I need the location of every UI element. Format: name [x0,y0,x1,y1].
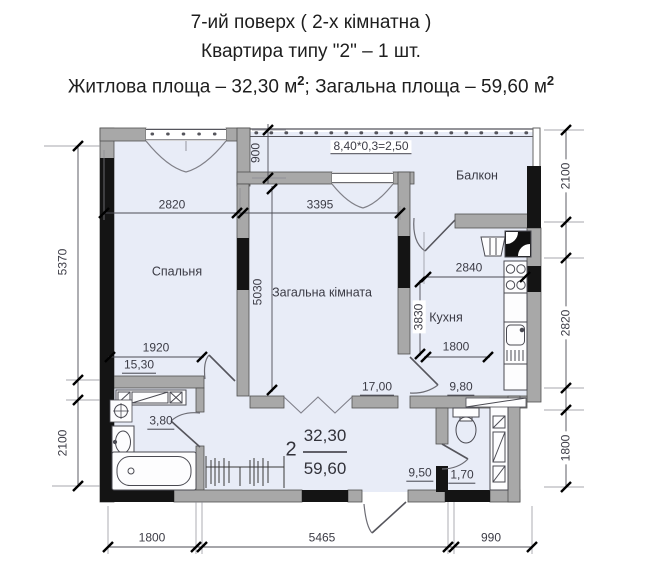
vent-shaft-icon [505,231,531,257]
room-label-living: Загальна кімната [272,286,372,299]
bathtub-icon [112,452,196,490]
dim-bottom-990: 990 [481,532,501,545]
apartment-number: 2 [285,440,296,461]
dim-right-2100: 2100 [560,160,573,193]
entrance-door-icon [364,502,406,533]
dim-top-3395: 3395 [307,199,334,212]
kitchen-sink-icon [504,322,527,364]
floor-plan-sheet: 7-ий поверх ( 2-х кімнатна ) Квартира ти… [0,0,670,581]
dim-right-2820: 2820 [560,307,573,340]
dim-living-5030: 5030 [252,279,265,306]
area-label-bathroom: 3,80 [147,415,174,430]
room-label-bedroom: Спальня [152,265,202,278]
area-label-bedroom: 15,30 [122,359,156,374]
dim-left-5370: 5370 [57,249,70,276]
dim-kitchen-1800: 1800 [443,341,470,354]
dim-kitchen-3830: 3830 [413,301,426,334]
dim-kitchen-2840: 2840 [456,262,483,275]
niche-icon [466,398,526,407]
room-label-kitchen: Кухня [429,311,462,324]
dim-right-1800: 1800 [560,432,573,465]
area-label-hallway: 9,50 [406,467,433,482]
floor-drain-icon [110,400,132,422]
dim-top-2820: 2820 [159,199,186,212]
dim-bottom-1800: 1800 [139,532,166,545]
dim-bedroom-1920: 1920 [143,342,170,355]
area-label-balcony-formula: 8,40*0,3=2,50 [330,140,411,154]
room-label-balcony: Балкон [456,169,498,182]
kitchen-counter-2 [504,364,527,390]
dim-left-2100: 2100 [57,430,70,457]
area-label-wc: 1,70 [448,469,475,484]
area-label-kitchen: 9,80 [447,381,474,396]
fridge-icon [481,237,505,256]
duct-shaft-icon [490,398,508,490]
kitchen-counter [504,293,527,322]
dim-bottom-5465: 5465 [309,532,336,545]
area-label-living: 17,00 [360,381,394,396]
dim-balcony-900: 900 [250,143,263,163]
summary-total-area: 59,60 [304,460,347,478]
summary-living-area: 32,30 [304,427,347,445]
